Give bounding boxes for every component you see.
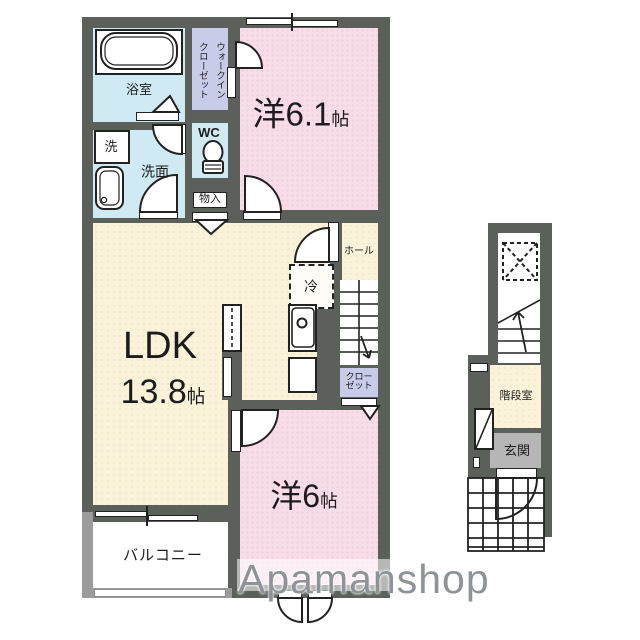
west61-window-2 bbox=[292, 20, 338, 27]
entrance-label: 玄関 bbox=[504, 444, 530, 458]
wic-label-line1: ウォークイン bbox=[214, 42, 225, 99]
main-stairs-area bbox=[340, 280, 378, 365]
annex-stairwell-upper bbox=[498, 233, 540, 365]
ldk-unit: 帖 bbox=[187, 386, 206, 407]
west61-window bbox=[246, 18, 292, 25]
bathtub-surround bbox=[95, 29, 183, 75]
floorplan-canvas: 浴室 ウォークイン クローゼット 洗 洗面 WC 物入 洋6.1帖 LDK 13… bbox=[0, 0, 640, 640]
west61-door-leaf bbox=[243, 211, 281, 220]
kitchen-sink-unit bbox=[288, 304, 317, 352]
room-ldk-lower bbox=[93, 400, 228, 505]
ldk-label: LDK bbox=[123, 327, 197, 367]
annex-window-small bbox=[473, 457, 480, 468]
washroom-door-leaf bbox=[139, 210, 178, 219]
wc-door-leaf bbox=[178, 124, 186, 154]
storage-niche bbox=[192, 212, 228, 222]
bathroom-label: 浴室 bbox=[126, 83, 152, 97]
west61-unit: 帖 bbox=[331, 110, 349, 130]
kitchen-partition-door-leaf bbox=[223, 357, 232, 397]
storage-label: 物入 bbox=[199, 194, 221, 206]
west6-label: 洋6帖 bbox=[270, 480, 337, 514]
entrance-porch bbox=[468, 478, 544, 551]
west6-unit: 帖 bbox=[320, 491, 338, 511]
annex-window-left bbox=[470, 363, 488, 372]
shoe-cabinet bbox=[474, 408, 494, 450]
wic-label-line2: クローゼット bbox=[197, 42, 208, 99]
kitchen-lower-unit bbox=[288, 357, 317, 393]
closet-label-line2: ゼット bbox=[345, 381, 372, 391]
washer-label: 洗 bbox=[104, 140, 117, 154]
watermark-text: Apamanshop bbox=[238, 556, 490, 603]
washroom-label: 洗面 bbox=[141, 165, 169, 180]
balcony-rail bbox=[94, 589, 226, 597]
kitchen-partition-counter bbox=[222, 304, 242, 352]
closet-label: クロー ゼット bbox=[345, 373, 372, 392]
west61-label: 洋6.1帖 bbox=[252, 98, 349, 133]
wic-door-leaf bbox=[227, 67, 236, 98]
closet-threshold bbox=[341, 398, 377, 406]
bathroom-door-threshold bbox=[136, 112, 179, 121]
hall-door-leaf bbox=[328, 222, 339, 262]
west6-door-leaf bbox=[231, 410, 241, 452]
fridge-label: 冷 bbox=[304, 280, 318, 295]
west6-name: 洋6 bbox=[270, 478, 320, 514]
balcony-side-wall bbox=[82, 512, 93, 598]
ldk-size: 13.8 bbox=[121, 373, 187, 411]
west61-name: 洋6.1 bbox=[252, 96, 331, 133]
balcony-window-2 bbox=[148, 515, 198, 521]
wc-label: WC bbox=[198, 126, 220, 140]
balcony-label: バルコニー bbox=[123, 548, 203, 564]
wic-label: ウォークイン クローゼット bbox=[193, 31, 228, 109]
entrance-door-leaf bbox=[496, 468, 537, 478]
hall-label: ホール bbox=[344, 247, 374, 258]
stair-hall-label: 階段室 bbox=[500, 391, 533, 403]
ldk-size-label: 13.8帖 bbox=[121, 375, 206, 411]
balcony-window bbox=[95, 511, 148, 517]
